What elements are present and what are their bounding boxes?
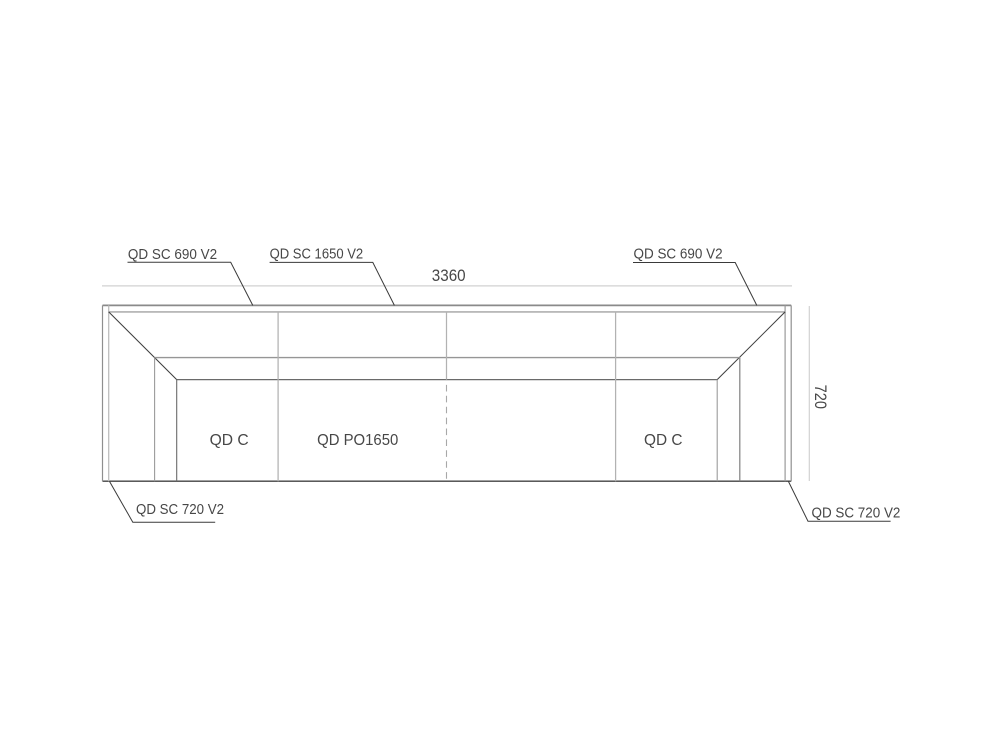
svg-text:QD C: QD C <box>210 432 249 449</box>
svg-text:QD SC 690 V2: QD SC 690 V2 <box>634 247 723 263</box>
svg-text:QD SC 720 V2: QD SC 720 V2 <box>136 502 224 518</box>
svg-text:3360: 3360 <box>432 266 466 285</box>
svg-text:QD SC 720 V2: QD SC 720 V2 <box>812 505 901 521</box>
svg-text:720: 720 <box>811 385 830 409</box>
svg-text:QD SC 1650 V2: QD SC 1650 V2 <box>270 247 364 263</box>
svg-text:QD PO1650: QD PO1650 <box>317 432 398 449</box>
svg-text:QD SC 690 V2: QD SC 690 V2 <box>128 247 217 263</box>
svg-text:QD C: QD C <box>644 432 683 449</box>
